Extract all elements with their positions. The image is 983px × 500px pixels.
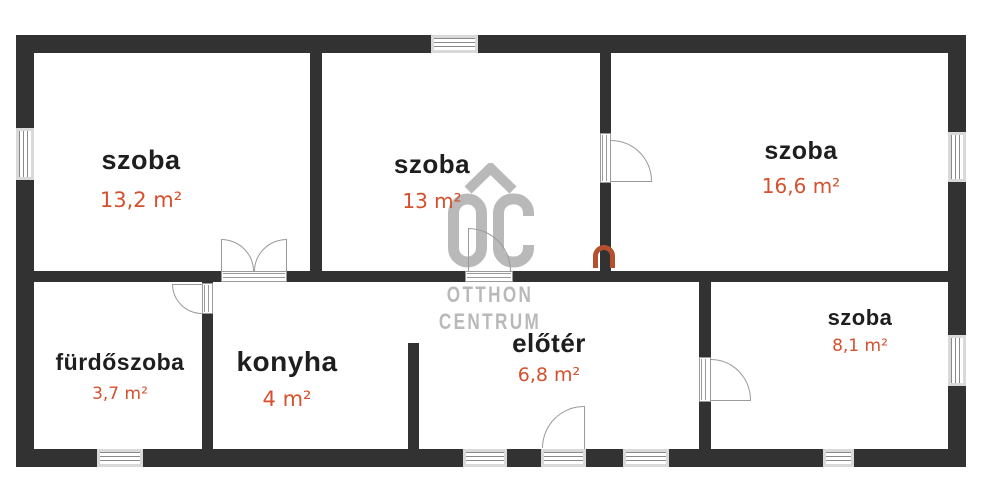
wall-konyha-eloter-stub xyxy=(408,343,419,449)
door-sill-szoba2 xyxy=(465,271,513,282)
room-label-szoba-1: szoba 13,2 m² xyxy=(100,147,182,211)
door-arc-double-right xyxy=(254,239,287,271)
room-area: 13 m² xyxy=(394,191,470,211)
door-arc-szoba4 xyxy=(711,359,751,400)
room-area: 16,6 m² xyxy=(762,176,840,196)
room-area: 3,7 m² xyxy=(56,386,185,403)
door-sill-szoba4 xyxy=(699,357,711,402)
door-arc-double-left xyxy=(221,239,254,271)
room-name: szoba xyxy=(394,151,470,177)
door-arc-furdoszoba xyxy=(172,284,202,314)
door-sill-entrance xyxy=(541,449,586,467)
floor-plan: OTTHON CENTRUM szoba 13,2 m² xyxy=(0,0,983,500)
room-label-eloter: előtér 6,8 m² xyxy=(512,330,586,385)
room-name: előtér xyxy=(512,330,586,356)
door-arc-szoba3 xyxy=(611,140,652,181)
window-left-icon xyxy=(16,128,34,180)
room-label-konyha: konyha 4 m² xyxy=(236,348,337,410)
room-label-szoba-3: szoba 16,6 m² xyxy=(762,139,840,196)
orange-arch-icon xyxy=(593,245,615,268)
room-name: konyha xyxy=(236,348,337,376)
window-bottom-4-icon xyxy=(823,449,854,467)
window-top-icon xyxy=(431,35,478,53)
door-sill-szoba3 xyxy=(600,133,611,183)
room-area: 8,1 m² xyxy=(828,338,893,355)
wall-exterior-right xyxy=(948,35,966,467)
room-name: fürdőszoba xyxy=(56,351,185,374)
room-area: 4 m² xyxy=(236,389,337,410)
window-bottom-2-icon xyxy=(463,449,507,467)
wall-exterior-top xyxy=(16,35,966,53)
window-right-top-icon xyxy=(948,132,966,182)
window-bottom-1-icon xyxy=(97,449,143,467)
watermark-line1: OTTHON xyxy=(447,284,533,306)
door-sill-furdoszoba xyxy=(202,283,213,314)
room-label-szoba-2: szoba 13 m² xyxy=(394,151,470,211)
room-name: szoba xyxy=(100,147,182,174)
room-area: 13,2 m² xyxy=(100,190,182,211)
window-bottom-3-icon xyxy=(623,449,669,467)
door-leaf-entrance xyxy=(584,406,585,449)
door-leaf-szoba4 xyxy=(711,400,751,401)
room-label-szoba-4: szoba 8,1 m² xyxy=(828,307,893,355)
room-label-furdoszoba: fürdőszoba 3,7 m² xyxy=(56,351,185,403)
wall-exterior-left xyxy=(16,35,34,467)
wall-szoba1-szoba2 xyxy=(310,53,322,271)
window-right-bottom-icon xyxy=(948,335,966,386)
room-name: szoba xyxy=(828,307,893,329)
door-arc-entrance xyxy=(542,406,584,448)
room-name: szoba xyxy=(762,139,840,164)
room-area: 6,8 m² xyxy=(512,366,586,385)
door-leaf-szoba3 xyxy=(611,181,652,182)
door-sill-double-szoba1 xyxy=(221,271,287,282)
